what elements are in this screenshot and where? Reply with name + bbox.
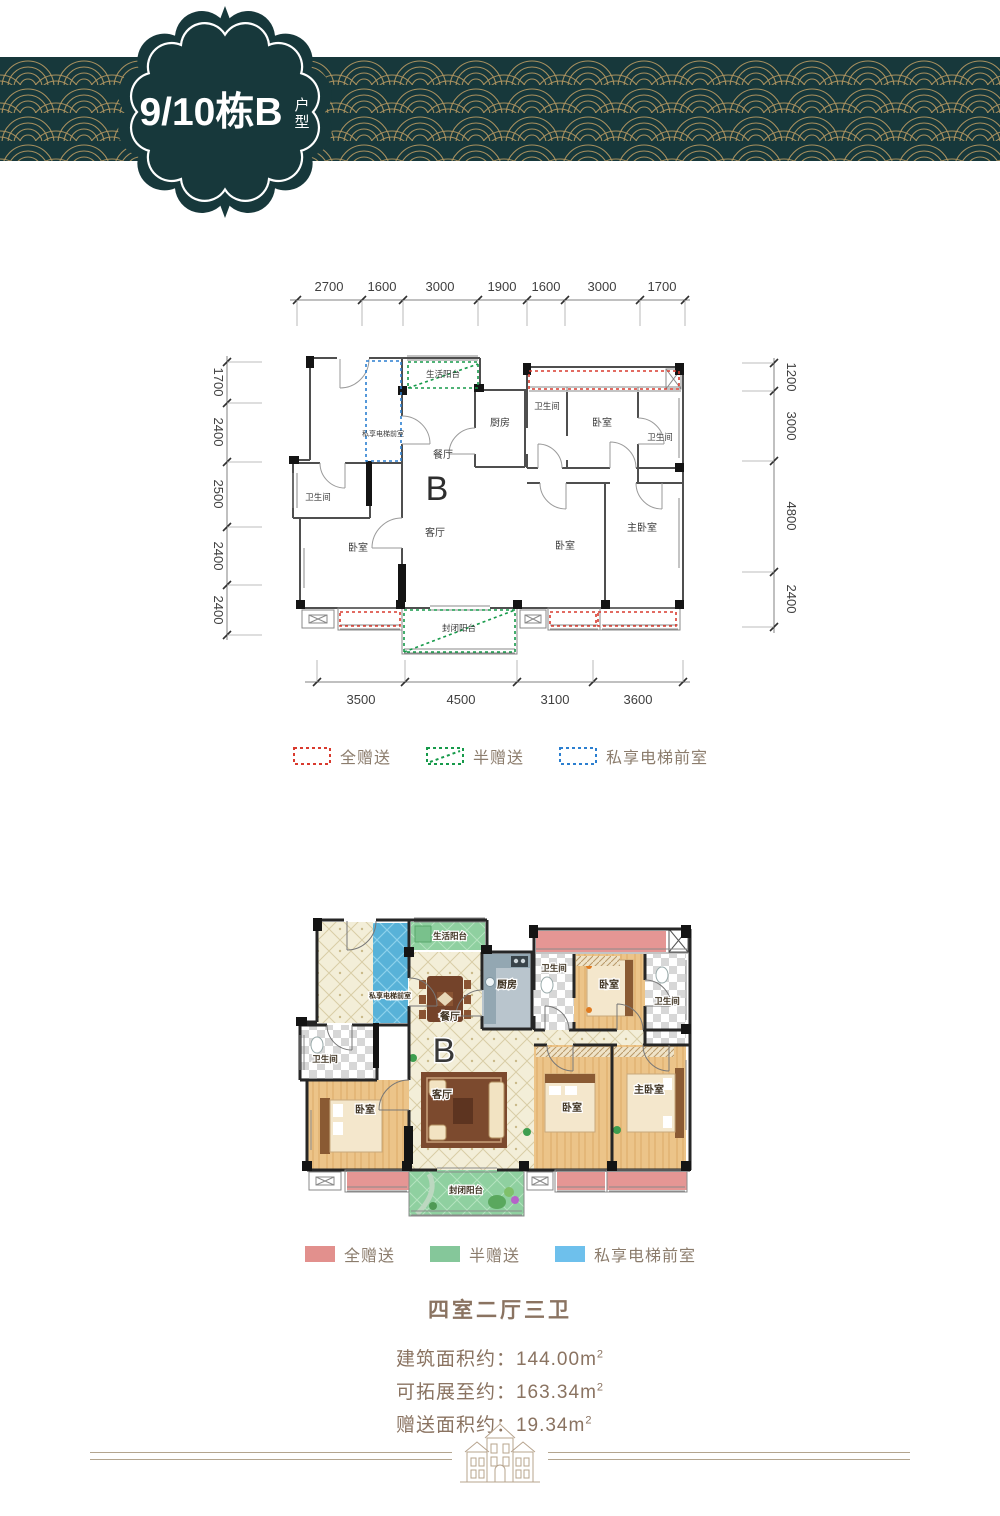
unit-letter: B [426, 470, 449, 508]
windows [293, 356, 681, 610]
label-living: 客厅 [431, 1088, 452, 1101]
label-bedroom: 卧室 [592, 416, 612, 429]
page-title-sub-bottom: 型 [294, 114, 309, 131]
private-lobby-swatch-dotted [558, 746, 598, 766]
page-title: 9/10栋B [139, 91, 282, 134]
svg-text:4500: 4500 [447, 692, 476, 707]
legend-item-private-lobby: 私享电梯前室 [558, 744, 708, 768]
brochure-page: 9/10栋B 户 型 2700 1600 3000 1900 1600 3000… [0, 0, 1000, 1516]
inner-walls [293, 358, 683, 608]
svg-text:4800: 4800 [784, 502, 799, 531]
dimensions-left: 1700 2400 2500 2400 2400 [211, 356, 262, 640]
dimensions-right: 1200 3000 4800 2400 [742, 358, 799, 633]
technical-floorplan: 2700 1600 3000 1900 1600 3000 1700 3500 … [190, 268, 810, 718]
svg-text:1600: 1600 [368, 279, 397, 294]
building-icon [455, 1420, 545, 1486]
label-service-balcony: 生活阳台 [426, 369, 460, 379]
label-bathroom: 卫生间 [541, 963, 567, 973]
svg-text:3000: 3000 [588, 279, 617, 294]
legend-label: 半赠送 [473, 744, 524, 768]
footer-rule-left-1 [90, 1452, 452, 1453]
full-gift-swatch-solid [304, 1245, 336, 1263]
legend-label: 全赠送 [340, 744, 391, 768]
rendered-floorplan: 生活阳台 私享电梯前室 厨房 卫生间 卧室 卫生间 餐厅 B 卫生间 卧室 客厅… [280, 893, 780, 1225]
area-line: 建筑面积约：144.00m2 [396, 1344, 604, 1371]
svg-text:1600: 1600 [532, 279, 561, 294]
legend-dotted: 全赠送 半赠送 私享电梯前室 [0, 744, 1000, 768]
svg-text:2400: 2400 [784, 585, 799, 614]
label-bathroom: 卫生间 [647, 432, 673, 442]
svg-text:3100: 3100 [541, 692, 570, 707]
label-bathroom: 卫生间 [534, 401, 560, 411]
legend-solid: 全赠送 半赠送 私享电梯前室 [0, 1242, 1000, 1266]
svg-text:2400: 2400 [211, 596, 226, 625]
label-dining: 餐厅 [433, 448, 453, 461]
area-line: 可拓展至约：163.34m2 [396, 1377, 604, 1404]
legend-item-full-gift: 全赠送 [292, 744, 391, 768]
legend-item-half-gift: 半赠送 [429, 1242, 520, 1266]
label-bedroom: 卧室 [348, 541, 368, 554]
label-closed-balcony: 封闭阳台 [449, 1185, 484, 1195]
title-cloud-badge: 9/10栋B 户 型 [100, 6, 350, 218]
legend-label: 半赠送 [469, 1242, 520, 1266]
label-bedroom: 卧室 [555, 539, 575, 552]
footer-rule-right-2 [548, 1459, 910, 1460]
label-private-lobby: 私享电梯前室 [368, 991, 411, 1000]
legend-label: 私享电梯前室 [606, 744, 708, 768]
legend-label: 全赠送 [344, 1242, 395, 1266]
svg-text:1900: 1900 [488, 279, 517, 294]
unit-letter: B [433, 1032, 456, 1070]
svg-text:1700: 1700 [211, 368, 226, 397]
label-bathroom: 卫生间 [312, 1054, 338, 1064]
label-bedroom: 卧室 [562, 1101, 582, 1114]
svg-text:3000: 3000 [784, 412, 799, 441]
label-bathroom: 卫生间 [305, 492, 331, 502]
svg-text:2400: 2400 [211, 418, 226, 447]
page-title-sub-top: 户 [294, 97, 309, 114]
label-master-bedroom: 主卧室 [627, 521, 657, 534]
legend-item-full-gift: 全赠送 [304, 1242, 395, 1266]
label-closed-balcony: 封闭阳台 [442, 623, 476, 633]
label-bedroom: 卧室 [355, 1103, 375, 1116]
dimensions-bottom: 3500 4500 3100 3600 [305, 660, 690, 707]
label-service-balcony: 生活阳台 [433, 931, 468, 941]
svg-text:2400: 2400 [211, 542, 226, 571]
label-bedroom: 卧室 [599, 978, 619, 991]
label-bathroom: 卫生间 [654, 996, 680, 1006]
footer-rule-left-2 [90, 1459, 452, 1460]
legend-label: 私享电梯前室 [594, 1242, 696, 1266]
room-labels: 生活阳台 私享电梯前室 厨房 卫生间 卧室 卫生间 餐厅 B 卫生间 卧室 客厅… [305, 369, 673, 633]
svg-text:3500: 3500 [347, 692, 376, 707]
svg-text:2500: 2500 [211, 480, 226, 509]
footer-rule-right-1 [548, 1452, 910, 1453]
full-gift-swatch-dotted [292, 746, 332, 766]
label-dining: 餐厅 [439, 1010, 460, 1023]
dimensions-top: 2700 1600 3000 1900 1600 3000 1700 [290, 279, 690, 326]
label-kitchen: 厨房 [497, 978, 517, 991]
label-master-bedroom: 主卧室 [634, 1083, 664, 1096]
svg-text:1200: 1200 [784, 363, 799, 392]
half-gift-swatch-dotted [425, 746, 465, 766]
half-gift-swatch-solid [429, 1245, 461, 1263]
label-kitchen: 厨房 [490, 416, 510, 429]
label-living: 客厅 [425, 526, 445, 539]
layout-title: 四室二厅三卫 [0, 1294, 1000, 1324]
svg-text:3000: 3000 [426, 279, 455, 294]
outer-walls [293, 358, 683, 608]
wall-columns [289, 356, 684, 609]
svg-text:3600: 3600 [624, 692, 653, 707]
legend-item-private-lobby: 私享电梯前室 [554, 1242, 696, 1266]
svg-text:2700: 2700 [315, 279, 344, 294]
label-private-lobby: 私享电梯前室 [362, 429, 404, 438]
private-lobby-swatch-solid [554, 1245, 586, 1263]
svg-text:1700: 1700 [648, 279, 677, 294]
legend-item-half-gift: 半赠送 [425, 744, 524, 768]
